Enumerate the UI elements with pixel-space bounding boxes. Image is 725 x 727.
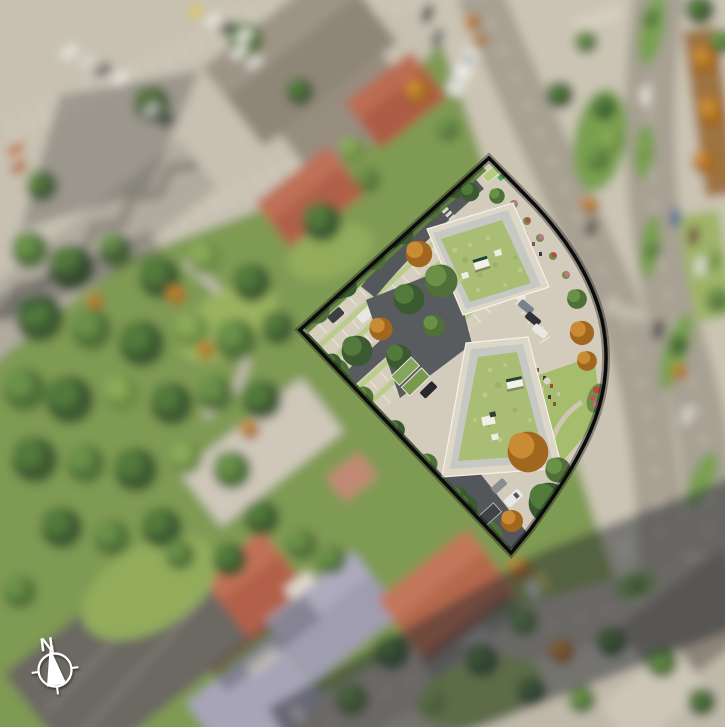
site-plan-svg: N: [0, 0, 725, 727]
aerial-site-rendering: N: [0, 0, 725, 727]
compass-north-label: N: [39, 634, 55, 657]
